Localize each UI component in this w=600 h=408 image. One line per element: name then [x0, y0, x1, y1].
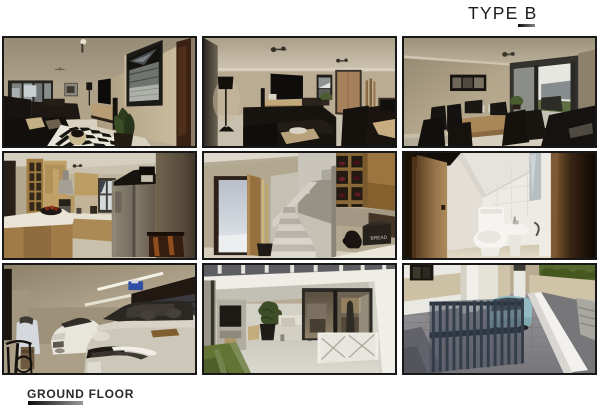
svg-text:BREAD: BREAD [370, 235, 388, 242]
